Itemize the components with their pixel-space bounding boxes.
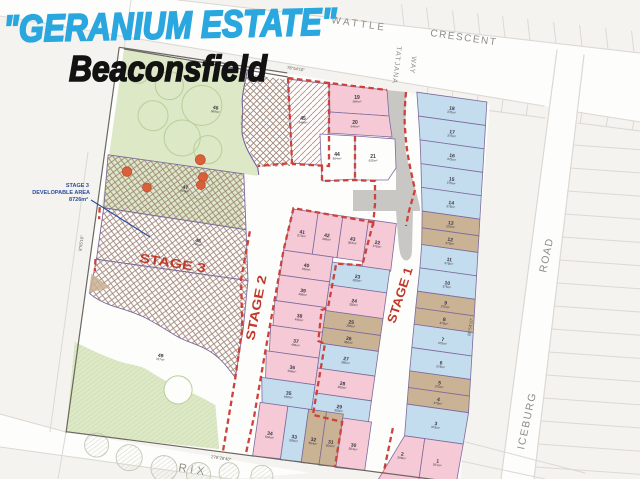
svg-text:8726m²: 8726m² xyxy=(69,196,88,203)
svg-text:DEVELOPABLE AREA: DEVELOPABLE AREA xyxy=(32,190,90,196)
svg-text:804m²: 804m² xyxy=(333,156,342,160)
svg-text:646m²: 646m² xyxy=(351,124,360,128)
svg-text:Beaconsfield: Beaconsfield xyxy=(69,48,268,89)
svg-text:625m²: 625m² xyxy=(369,158,378,162)
svg-text:948m²: 948m² xyxy=(299,120,308,124)
svg-text:586m²: 586m² xyxy=(353,99,362,103)
svg-text:STAGE 3: STAGE 3 xyxy=(66,183,89,189)
svg-text:"GERANIUM ESTATE": "GERANIUM ESTATE" xyxy=(3,1,338,51)
